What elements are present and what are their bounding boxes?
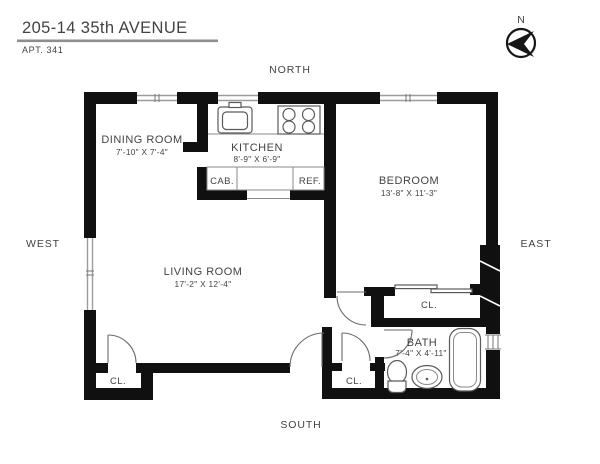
door-bedroom	[337, 292, 366, 325]
window-east-bath	[484, 334, 502, 350]
bathroom-sink-icon	[412, 366, 442, 389]
door-entry	[290, 333, 324, 367]
title-underline	[17, 40, 218, 43]
room-dims-dining: 7'-10" X 7'-4"	[116, 147, 168, 157]
room-label-bedroom: BEDROOM	[379, 175, 439, 187]
floor-plan-page: 205-14 35th AVENUE APT. 341 N NORTH SOUT…	[0, 0, 600, 464]
room-label-living: LIVING ROOM	[164, 266, 243, 278]
kitchen-sink-icon	[218, 103, 252, 134]
room-label-dining: DINING ROOM	[101, 134, 182, 146]
label-hall-closet: CL.	[346, 376, 362, 387]
bathtub-icon	[450, 329, 481, 392]
room-dims-bedroom: 13'-8" X 11'-3"	[381, 188, 437, 198]
direction-label-west: WEST	[26, 238, 60, 250]
window-north-bedroom	[380, 94, 437, 102]
direction-label-north: NORTH	[269, 64, 311, 76]
toilet-icon	[388, 361, 407, 393]
direction-label-south: SOUTH	[280, 419, 321, 431]
label-bedroom-closet: CL.	[421, 300, 437, 311]
page-title: 205-14 35th AVENUE	[22, 19, 188, 37]
floor-plan-drawing: 205-14 35th AVENUE APT. 341 N NORTH SOUT…	[0, 0, 600, 464]
compass-icon: N	[507, 14, 535, 57]
window-north-kitchen	[218, 96, 258, 101]
door-hall-closet	[342, 333, 370, 361]
stove-icon	[278, 106, 320, 134]
sliding-door-bedroom-closet	[395, 285, 472, 293]
label-refrigerator: REF.	[299, 176, 321, 187]
direction-label-east: EAST	[520, 238, 551, 250]
window-west-living	[86, 238, 94, 310]
compass-north-letter: N	[517, 14, 525, 26]
room-dims-kitchen: 8'-9" X 6'-9"	[233, 154, 280, 164]
room-label-kitchen: KITCHEN	[231, 142, 283, 154]
label-cabinet: CAB.	[210, 176, 234, 187]
room-dims-living: 17'-2" X 12'-4"	[175, 279, 232, 289]
window-north-dining	[137, 94, 177, 102]
room-dims-bath: 7'-4" X 4'-11"	[395, 348, 446, 358]
door-living-closet	[108, 335, 136, 363]
apartment-number: APT. 341	[22, 45, 63, 55]
label-living-closet: CL.	[110, 376, 126, 387]
